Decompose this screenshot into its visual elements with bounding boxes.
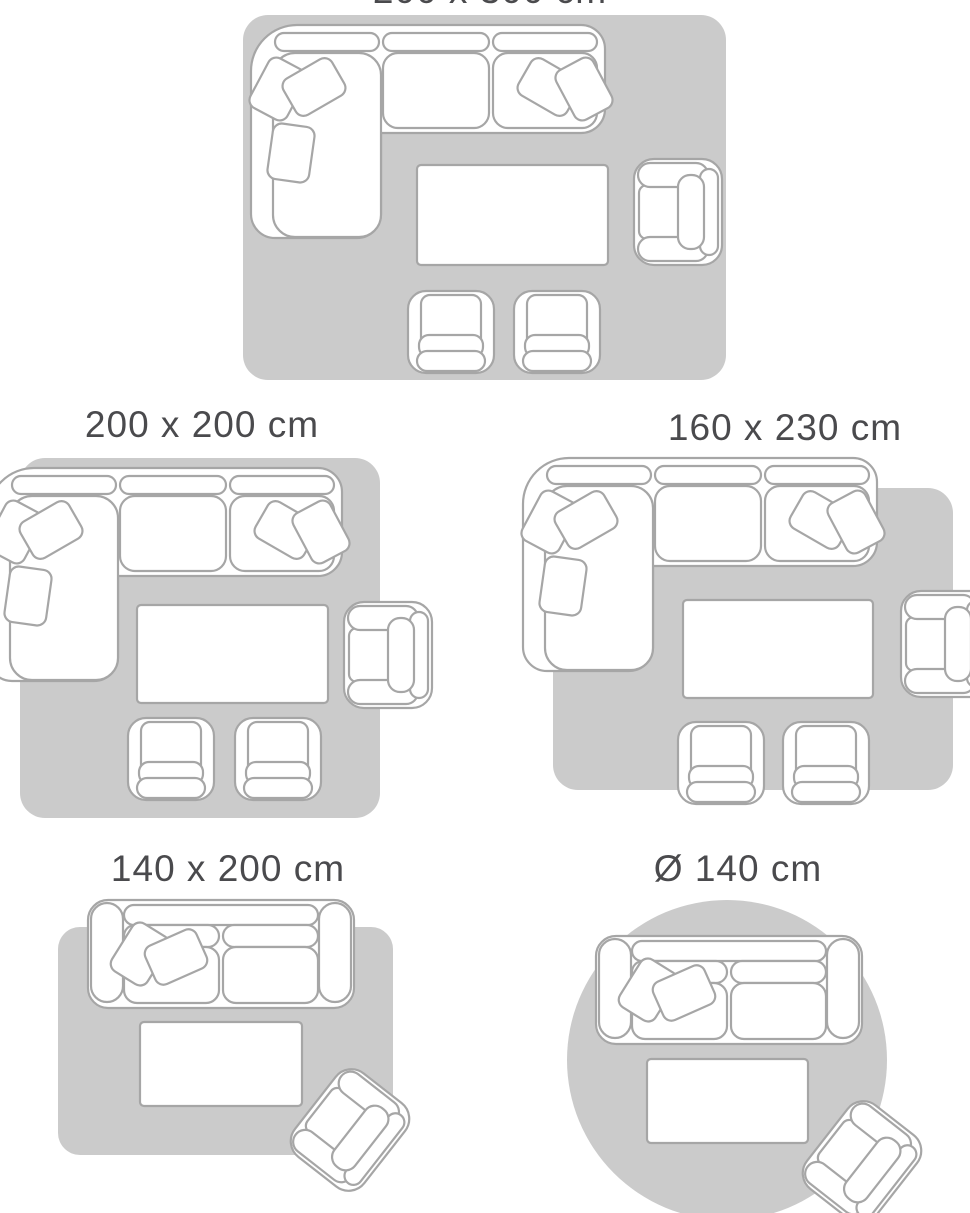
club-chair-left xyxy=(128,718,214,800)
club-chair-right xyxy=(235,718,321,800)
armchair xyxy=(634,159,722,265)
size-label-200x300: 200 x 300 cm xyxy=(290,0,690,12)
coffee-table xyxy=(417,165,608,265)
rug-size-guide: 200 x 300 cm 200 x 200 cm 160 x 230 cm 1… xyxy=(0,0,970,1213)
scene-rug-200x300 xyxy=(243,15,726,380)
size-label-round-140: Ø 140 cm xyxy=(538,848,938,890)
armchair xyxy=(901,591,970,697)
size-label-140x200: 140 x 200 cm xyxy=(28,848,428,890)
size-label-200x200: 200 x 200 cm xyxy=(2,404,402,446)
coffee-table xyxy=(647,1059,808,1143)
scene-rug-160x230 xyxy=(518,458,970,804)
two-seat-sofa xyxy=(88,900,354,1008)
club-chair-right xyxy=(514,291,600,373)
armchair xyxy=(344,602,432,708)
club-chair-right xyxy=(783,722,869,804)
size-guide-illustration xyxy=(0,0,970,1213)
scene-rug-200x200 xyxy=(0,458,432,818)
scene-rug-140x200 xyxy=(58,900,417,1199)
coffee-table xyxy=(683,600,873,698)
scene-rug-round-140 xyxy=(567,900,929,1213)
two-seat-sofa xyxy=(596,936,862,1044)
club-chair-left xyxy=(408,291,494,373)
coffee-table xyxy=(140,1022,302,1106)
club-chair-left xyxy=(678,722,764,804)
coffee-table xyxy=(137,605,328,703)
size-label-160x230: 160 x 230 cm xyxy=(585,407,970,449)
